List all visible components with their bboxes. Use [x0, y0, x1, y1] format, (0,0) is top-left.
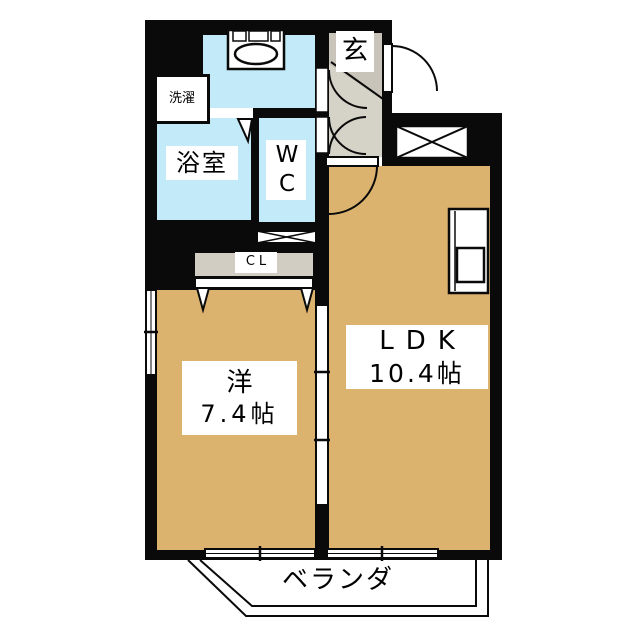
toilet-label: WC [266, 140, 306, 200]
laundry-label: 洗濯 [154, 74, 210, 124]
ldk-size: 10.4帖 [369, 360, 465, 388]
wall-bath-wc [251, 118, 259, 222]
western-room-size: 7.4帖 [200, 401, 278, 427]
wall-left [145, 118, 157, 560]
veranda-label: ベランダ [253, 564, 423, 596]
wall-entrance-right [382, 20, 392, 128]
wall-center-band [315, 20, 329, 560]
entrance-label: 玄 [336, 31, 374, 72]
wall-block-ldk-top [382, 113, 502, 166]
closet-label: CL [235, 252, 277, 273]
western-room-name: 洋 [226, 369, 252, 398]
ldk-name: LDK [367, 327, 467, 356]
bathroom-label: 浴室 [166, 146, 238, 180]
room-washroom [203, 35, 315, 108]
ldk-label: LDK 10.4帖 [346, 325, 488, 389]
wall-right [490, 113, 502, 560]
floor-plan: 玄 洗濯 浴室 WC CL 洋 7.4帖 LDK 10.4帖 ベランダ [0, 0, 640, 640]
western-room-label: 洋 7.4帖 [182, 361, 297, 435]
